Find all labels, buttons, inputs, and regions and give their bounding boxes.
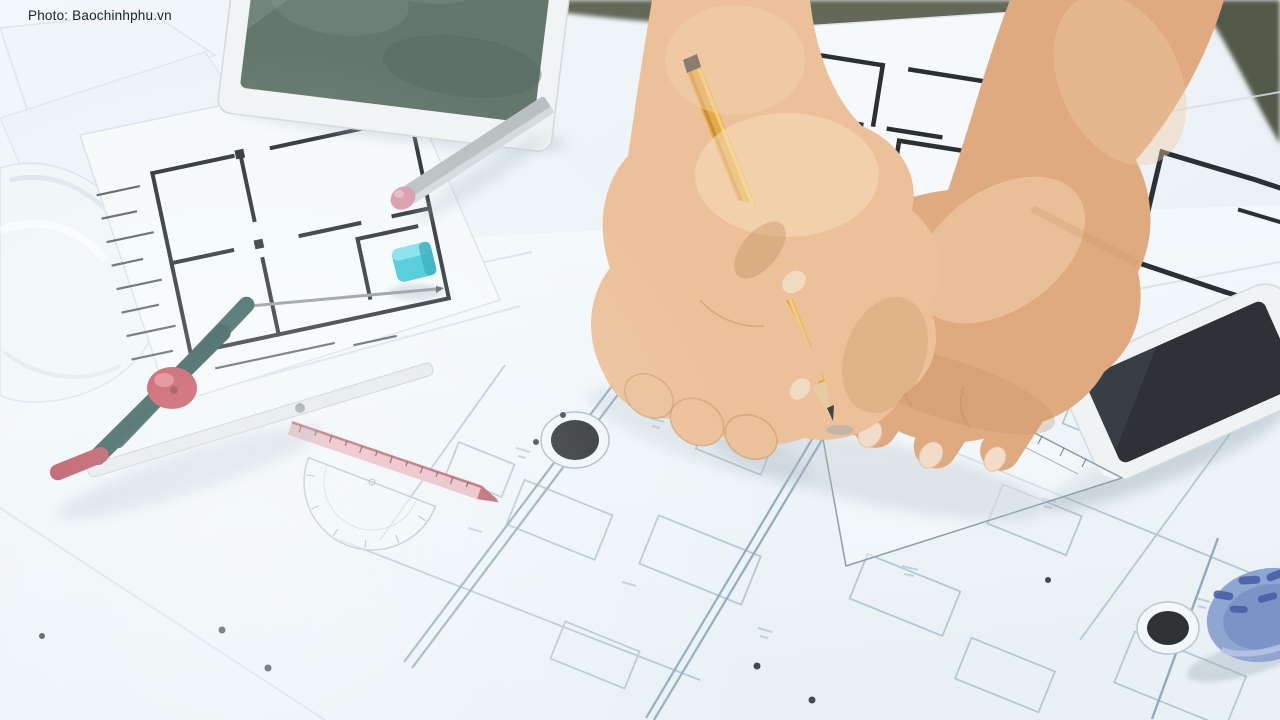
photo-architect-drafting: Photo: Baochinhphu.vn [0,0,1280,720]
overlay-tint [0,0,1280,720]
photo-canvas [0,0,1280,720]
photo-credit: Photo: Baochinhphu.vn [28,8,172,23]
